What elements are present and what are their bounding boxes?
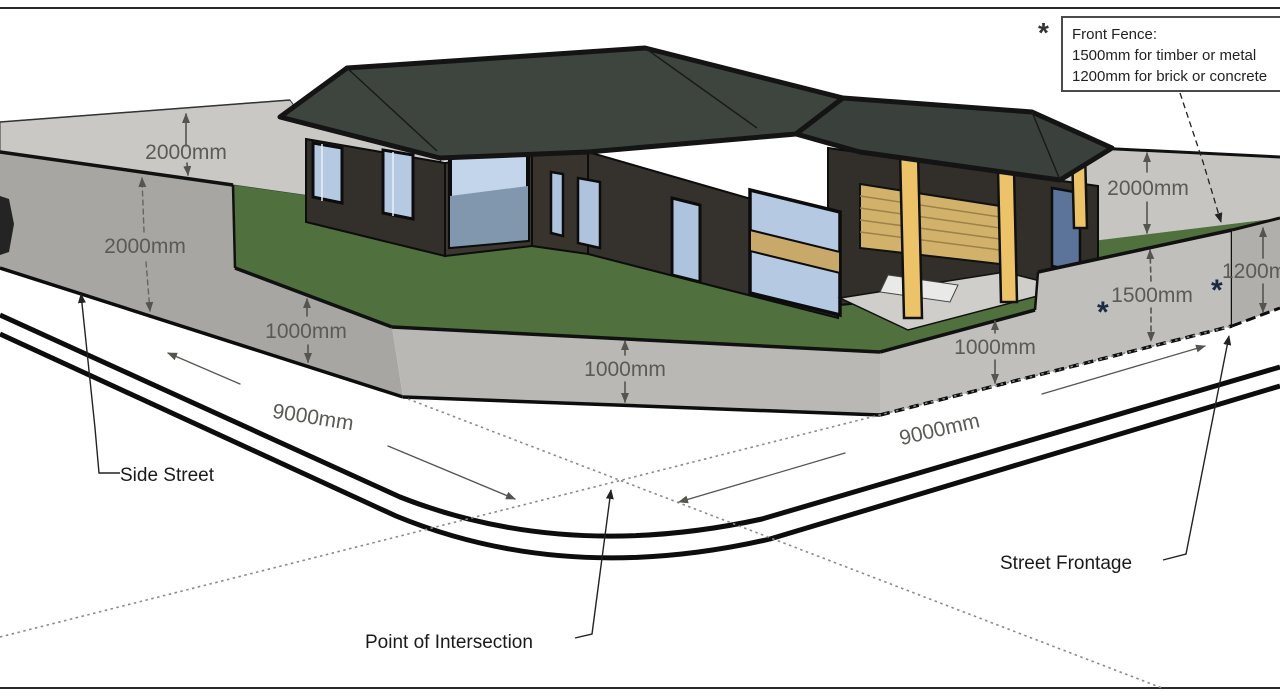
dim-front-fence-low: 1000mm xyxy=(954,336,1036,359)
side-street-label: Side Street xyxy=(120,465,215,486)
porch-post-2 xyxy=(998,170,1017,302)
dim-rear-right-fence: 2000mm xyxy=(1107,177,1189,200)
dim-side-boundary-length: 9000mm xyxy=(271,400,355,435)
window-mid-1 xyxy=(551,172,563,236)
window-bay-2 xyxy=(383,150,413,219)
asterisk-timber: * xyxy=(1097,296,1109,329)
note-option-timber: 1500mm for timber or metal xyxy=(1072,47,1256,64)
dim-front-fence-timber: 1500mm xyxy=(1111,284,1193,307)
street-frontage-leader xyxy=(1163,336,1229,560)
dim-front-boundary-length: 9000mm xyxy=(897,409,982,450)
dim-arrow xyxy=(187,163,188,175)
point-of-intersection-label: Point of Intersection xyxy=(365,632,533,653)
dim-corner-splay-fence: 1000mm xyxy=(584,358,666,381)
asterisk-note-marker: * xyxy=(1038,17,1049,48)
site-fencing-diagram: 2000mm 2000mm 1000mm 1000mm 1000mm 1500m… xyxy=(0,0,1280,700)
dim-side-fence-low: 1000mm xyxy=(265,320,347,343)
window-mid-2 xyxy=(578,178,600,248)
side-street-leader xyxy=(81,294,120,473)
note-option-masonry: 1200mm for brick or concrete xyxy=(1072,68,1267,85)
dim-line xyxy=(388,446,515,499)
note-title: Front Fence: xyxy=(1072,26,1157,43)
dim-rear-left-fence: 2000mm xyxy=(145,141,227,164)
porch-post-1 xyxy=(900,152,922,318)
dim-line xyxy=(168,353,240,384)
dim-line xyxy=(679,453,845,502)
window-wing-1 xyxy=(672,198,700,282)
window-bay-1 xyxy=(313,143,342,203)
street-frontage-label: Street Frontage xyxy=(1000,553,1132,574)
asterisk-masonry: * xyxy=(1211,274,1223,307)
diagram-canvas: 2000mm 2000mm 1000mm 1000mm 1000mm 1500m… xyxy=(0,0,1280,700)
point-of-intersection-leader xyxy=(575,490,611,638)
window-corner-reflection xyxy=(450,186,528,247)
dim-front-fence-masonry: 1200mm xyxy=(1222,260,1280,283)
dim-side-fence-tall: 2000mm xyxy=(104,235,186,258)
